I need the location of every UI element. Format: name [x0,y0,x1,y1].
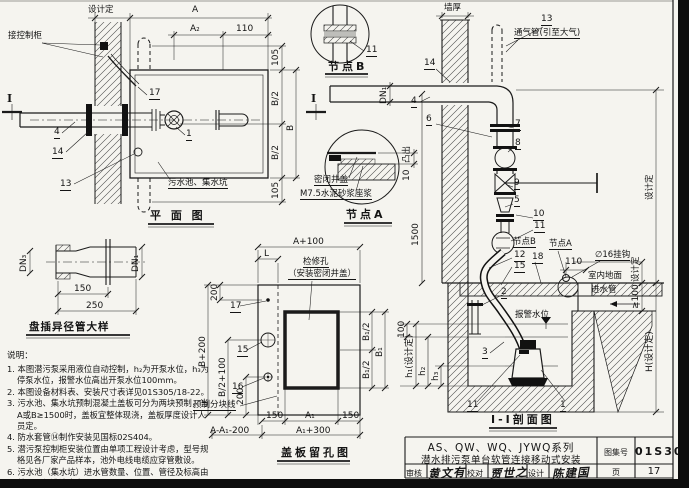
section-dim-dn1: DN₁ [380,87,389,104]
figure-title-node-a: 节点A [346,209,386,220]
section-ref-2: 2 [501,288,507,299]
cover-dim-b1-2-bottom: B₁/2 [363,360,372,379]
plan-dim-a2: A₂ [190,25,200,34]
section-dim-1500: 1500 [412,223,421,246]
plan-ref-13: 13 [60,180,71,191]
reducer-dim-dn3: DN₃ [20,255,29,272]
titleblock-page-no: 17 [635,466,673,477]
cover-dim-L: L [264,250,269,259]
cover-dim-150-right: 150 [342,412,359,421]
section-ref-7: 7 [515,120,521,131]
figure-title-cover: 盖板留孔图 [281,447,351,458]
section-wall-thickness-label: 墙厚 [444,4,461,13]
section-ref-11b: 11 [467,401,478,412]
section-ref-11: 11 [534,222,545,233]
section-ref-6: 6 [426,115,432,126]
figure-title-section: I-I剖面图 [491,414,555,425]
cover-hole-label-1: 检修孔 [303,258,329,268]
section-dim-110: 110 [565,258,582,267]
section-dim-design-set: 设计定 [646,174,655,200]
section-ref-5: 5 [514,196,520,207]
plan-design-set-label: 设计定 [88,6,114,15]
cover-ref-15: 15 [237,346,248,357]
nodea-mortar-label: M7.5水泥砂浆座浆 [300,190,372,200]
plan-section-mark-left: I [7,93,12,104]
plan-dim-a: A [192,6,198,15]
titleblock-audit-label: 审核 [406,468,422,479]
section-dim-H: H(设计定) [646,331,655,372]
section-node-a-ref: 节点A [549,240,572,250]
plan-ref-17: 17 [149,89,160,100]
plan-control-cabinet-label: 接控制柜 [8,32,42,41]
section-vent-label: 通气管(引至大气) [514,29,580,39]
note-item-3: 3. 污水池、集水坑预制混凝土盖板可分为两块预制，当A或B≥1500时，盖板宜整… [7,398,209,432]
cover-dim-a1: A₁ [305,412,315,421]
titleblock-name: 潜水排污泵单台软管连接移动式安装 [405,452,597,466]
scan-border-bottom [0,479,689,488]
section-node-b-ref: 节点B [513,238,536,248]
cover-ref-17: 17 [230,302,241,313]
nodea-cover-label: 密闭井盖 [314,176,348,186]
section-hook-label: ∅16挂钩 [595,251,630,261]
section-dim-ge100: ≥100 [632,284,641,309]
cover-dim-b2-100: B/2+100 [219,357,228,397]
cover-dim-a-a1-200: A-A₁-200 [210,427,249,436]
plan-dim-b2-top: B/2 [272,91,281,106]
plan-dim-b: B [287,125,296,131]
cover-dim-200-bottom: 200 [237,388,246,405]
section-alarm-label: 报警水位 [515,311,549,320]
section-ref-4: 4 [411,97,417,108]
section-ref-9: 9 [514,179,520,190]
notes-heading: 说明： [7,349,209,361]
section-ref-13: 13 [541,15,552,26]
plan-dim-110: 110 [236,25,253,34]
section-ref-3: 3 [482,348,488,359]
plan-dim-105-top: 105 [272,49,281,66]
section-inlet-label: 进水管 [591,286,617,295]
section-dim-design-set2: 设计定 [632,256,641,282]
section-ref-14: 14 [424,59,435,70]
nodeb-ref-11: 11 [366,46,377,57]
section-view-linework [330,12,664,431]
figure-title-node-b: 节点B [328,61,367,72]
section-dim-h2: h₂ [419,367,428,376]
cover-dim-200-top: 200 [211,284,220,301]
titleblock-atlas-no: 01S305 [635,445,673,458]
titleblock-page-label: 页 [597,467,635,478]
cover-dim-b1-2-top: B₁/2 [363,322,372,341]
titleblock-atlas-label: 图集号 [597,447,635,458]
note-item-1: 1. 本图潜污泵采用液位自动控制，h₂为开泵水位，h₃为停泵水位，报警水位高出开… [7,364,209,387]
section-ref-1: 1 [560,401,566,412]
section-dim-h3: h₃ [432,372,441,381]
cover-dim-a1-300: A₁+300 [296,427,330,436]
nodea-dim-10: 10 [403,170,412,181]
reducer-dim-dn1: DN₁ [132,255,141,272]
section-dim-h1: h₁(设计定) [406,335,415,378]
plan-ref-4: 4 [54,128,60,139]
section-ref-8: 8 [515,139,521,150]
titleblock-check-label: 校对 [467,468,483,479]
plan-dim-b2-bottom: B/2 [272,145,281,160]
section-floor-label: 室内地面 [588,272,622,281]
nodea-protrude-label: 凸出 [403,146,412,163]
cover-dim-a100: A+100 [293,238,324,247]
plan-sump-label: 污水池、集水坑 [168,179,228,189]
section-ref-18: 18 [532,253,543,264]
cover-dim-b1: B₁ [376,347,385,357]
drawing-sheet: 设计定 A A₂ 110 接控制柜 105 B/2 B B/2 105 17 1… [0,0,689,488]
figure-title-reducer: 盘插异径管大样 [29,322,110,333]
section-ref-15: 15 [514,262,525,273]
figure-title-plan: 平 面 图 [150,210,206,221]
scan-border-right [678,0,689,488]
plan-dim-105-bottom: 105 [272,182,281,199]
plan-ref-1: 1 [186,130,192,141]
cover-hole-label-2: （安装密闭井盖） [288,270,356,280]
section-ref-12: 12 [514,251,525,262]
note-item-5: 5. 潜污泵控制柜安装位置由单项工程设计考虑，型号规格见各厂家产品样本，池外电线… [7,444,209,467]
notes-block: 说明： 1. 本图潜污泵采用液位自动控制，h₂为开泵水位，h₃为停泵水位，报警水… [7,349,209,488]
cover-dim-150-left: 150 [266,412,283,421]
note-item-4: 4. 防水套管⑭制作安装见国标02S404。 [7,432,209,443]
plan-ref-14: 14 [52,148,63,159]
plan-section-mark-right: I [311,93,316,104]
note-item-2: 2. 本图设备材料表、安装尺寸表详见01S305/18-22。 [7,387,209,398]
reducer-dim-150: 150 [74,285,91,294]
section-ref-10: 10 [533,210,544,221]
titleblock-design-label: 设计 [528,468,544,479]
reducer-dim-250: 250 [86,302,103,311]
